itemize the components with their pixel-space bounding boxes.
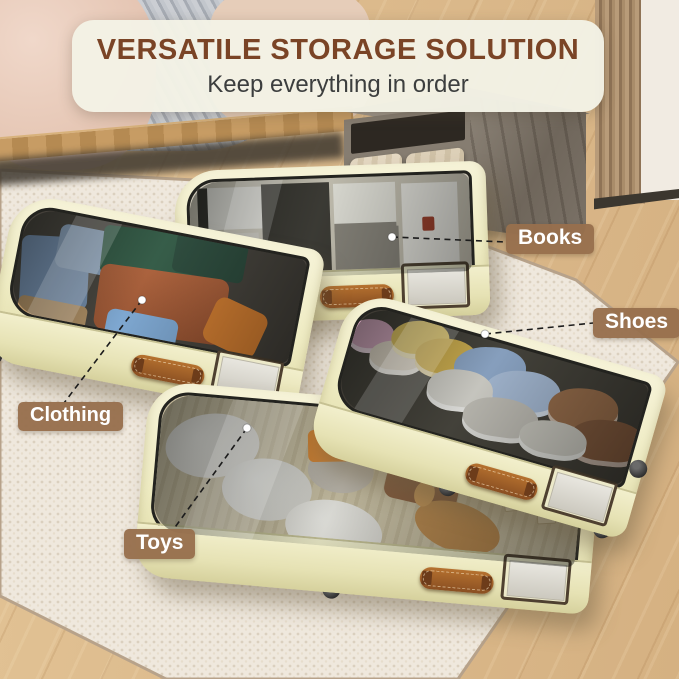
callout-books: Books <box>506 224 594 254</box>
handle-rivet <box>524 482 537 498</box>
callout-toys: Toys <box>124 529 195 559</box>
drawer-handle <box>463 461 540 503</box>
banner-title: VERSATILE STORAGE SOLUTION <box>97 34 579 67</box>
handle-rivet <box>322 290 332 304</box>
callout-clothing: Clothing <box>18 402 123 431</box>
handle-rivet <box>421 570 432 585</box>
handle-rivet <box>191 369 203 385</box>
drawer-handle <box>419 566 495 594</box>
banner-subtitle: Keep everything in order <box>207 71 469 99</box>
handle-rivet <box>132 357 144 373</box>
callout-shoes: Shoes <box>593 308 679 338</box>
title-banner: VERSATILE STORAGE SOLUTION Keep everythi… <box>72 20 604 112</box>
product-scene: VERSATILE STORAGE SOLUTION Keep everythi… <box>0 0 679 679</box>
handle-rivet <box>481 576 492 591</box>
handle-rivet <box>466 465 479 481</box>
nightstand-shelf-gap <box>351 110 465 154</box>
